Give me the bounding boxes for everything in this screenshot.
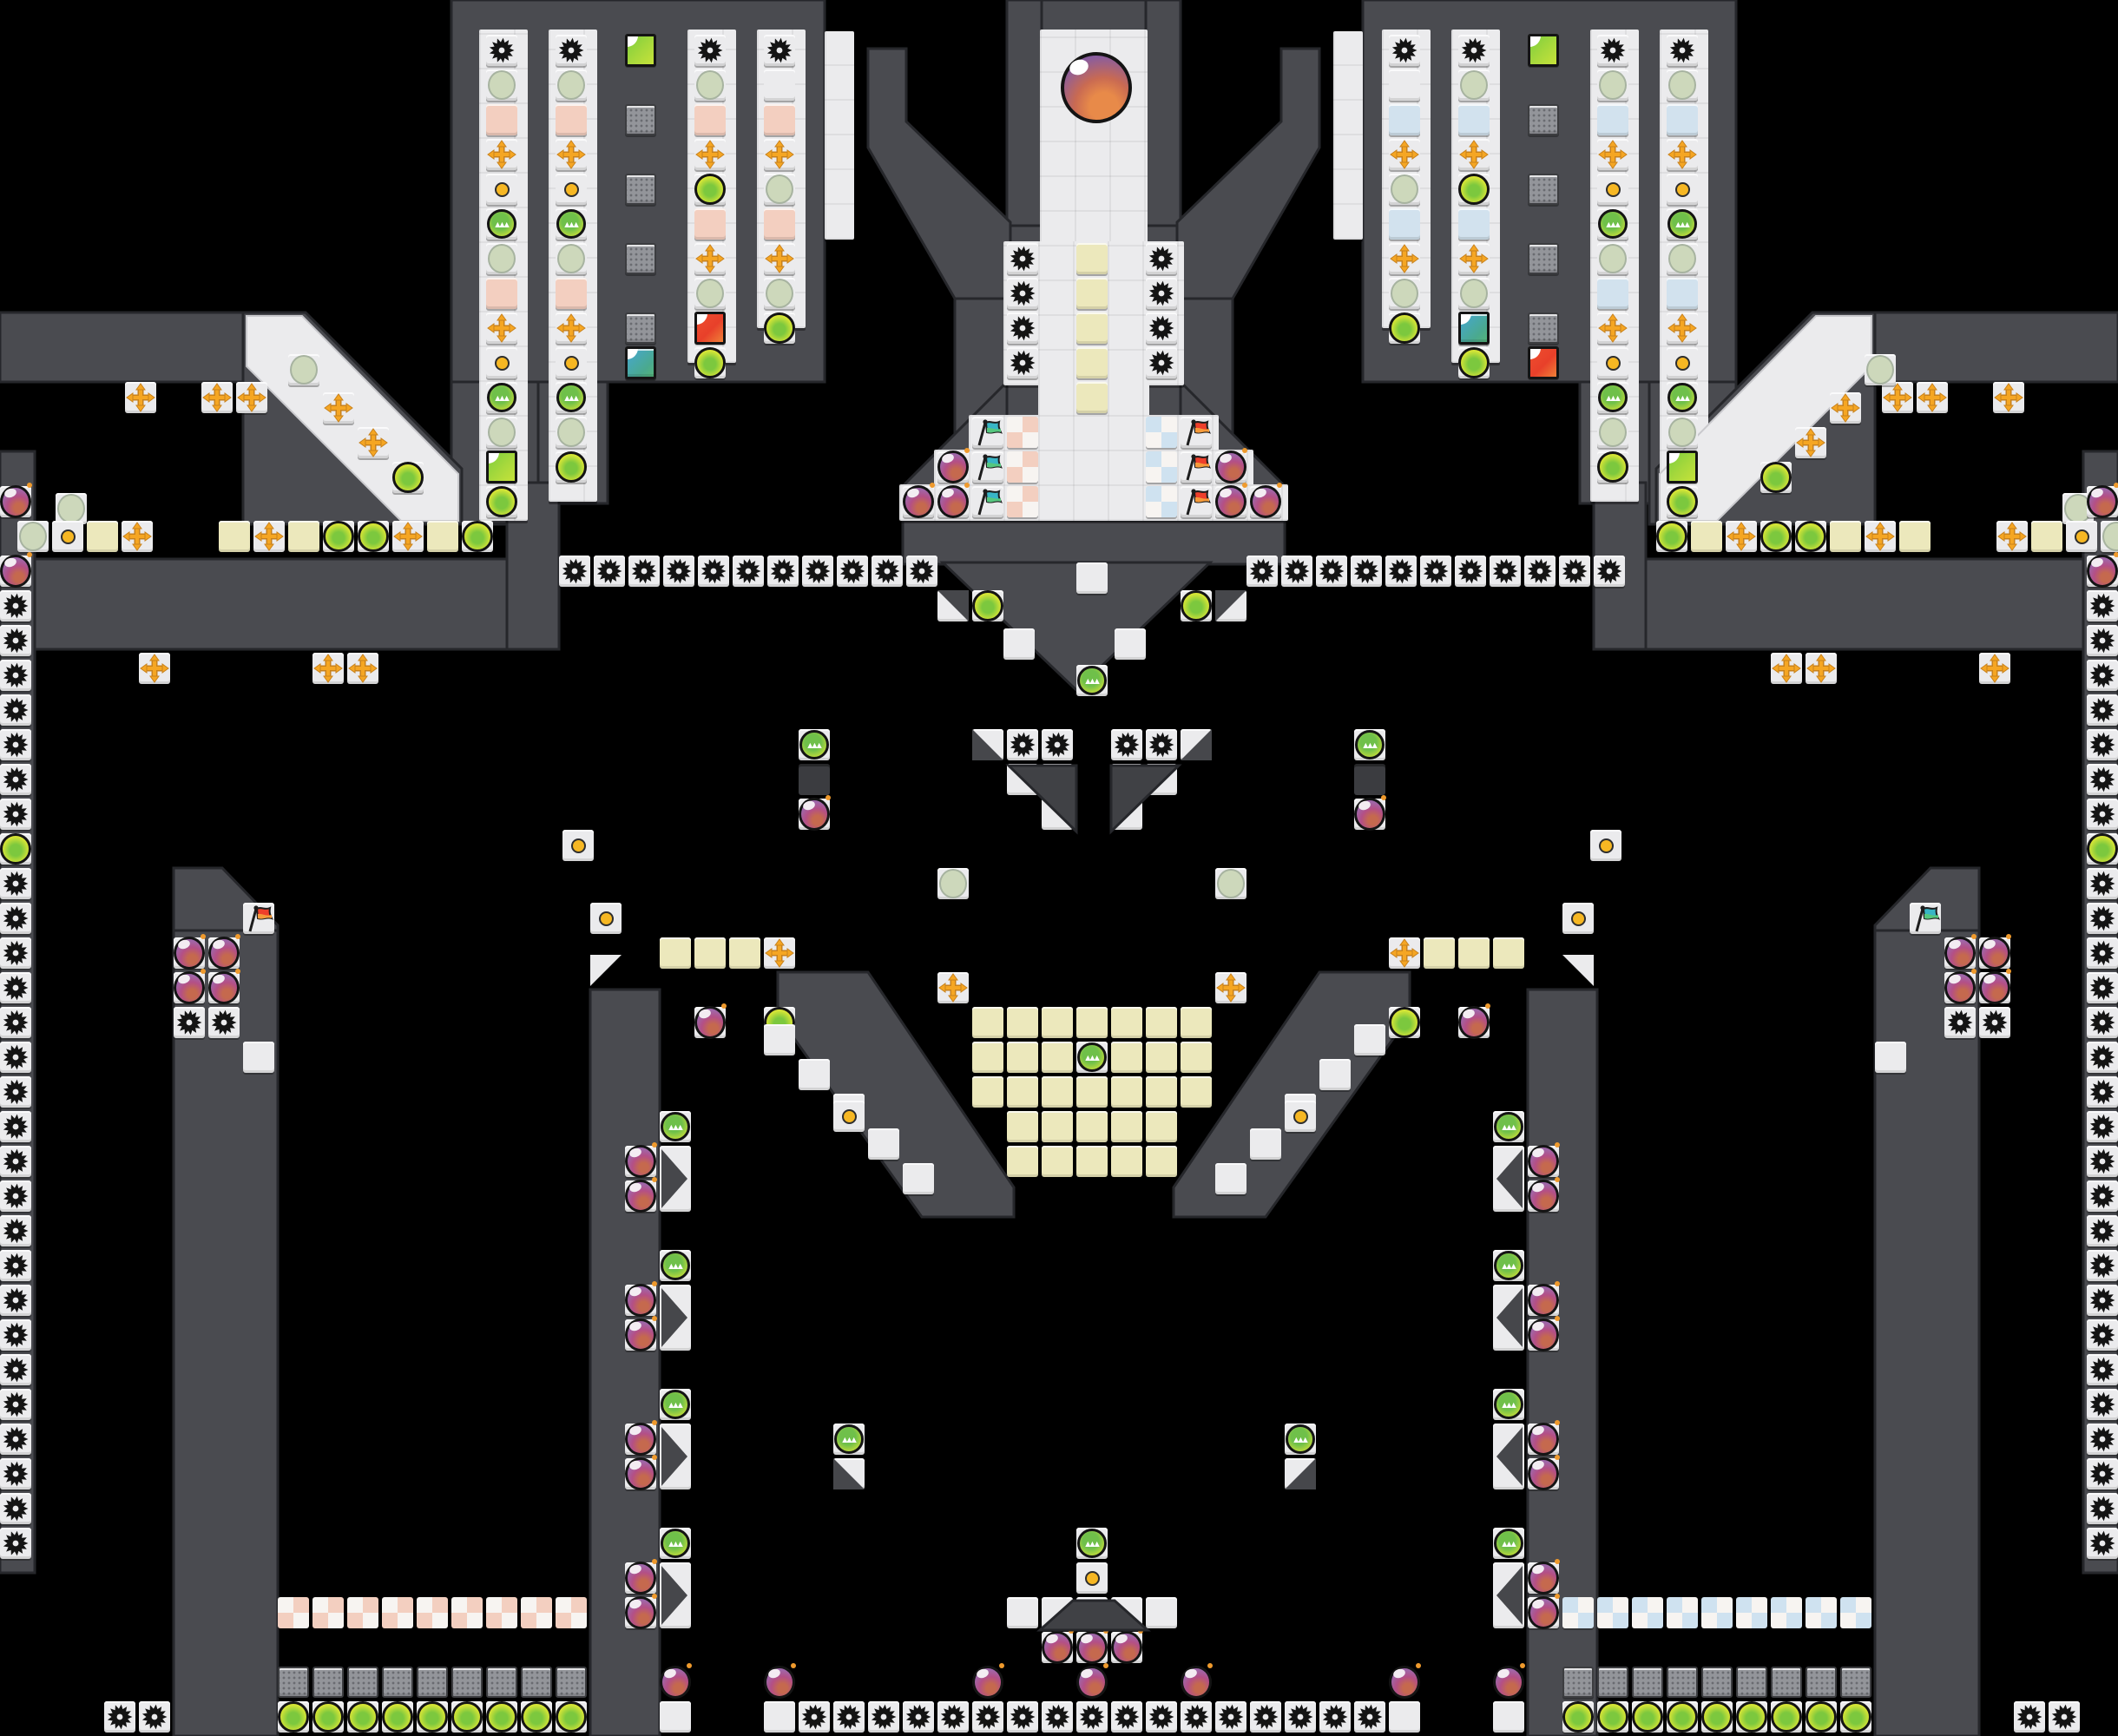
pale-coin[interactable] [488, 244, 516, 273]
move-cross-icon [1389, 243, 1420, 274]
lime-coin-tile [1771, 1701, 1802, 1733]
saw-tile [2087, 1528, 2118, 1559]
lime-coin[interactable] [2087, 833, 2118, 865]
level-map: ▲▲▲ ▲▲▲ ▲▲▲ ▲▲▲ [0, 0, 2118, 1736]
cream-path-tile [1146, 1076, 1177, 1108]
lime-coin[interactable] [417, 1701, 448, 1733]
creature-coin-tile: ▲▲▲ [1493, 1111, 1524, 1142]
pale-coin[interactable] [1391, 174, 1418, 204]
checker-blue-tile [1632, 1597, 1663, 1628]
saw-blade-icon [1007, 312, 1038, 344]
creature-coin[interactable]: ▲▲▲ [1494, 1112, 1523, 1141]
blue-track-tile [1667, 104, 1698, 135]
creature-coin[interactable]: ▲▲▲ [487, 209, 516, 239]
bomb[interactable] [1076, 1666, 1108, 1699]
bomb[interactable] [1528, 1284, 1559, 1317]
pale-coin-tile [486, 417, 517, 448]
bomb[interactable] [1111, 1631, 1142, 1664]
creature-coin[interactable]: ▲▲▲ [1286, 1424, 1315, 1454]
mini-coin[interactable] [1675, 182, 1690, 197]
mini-coin[interactable] [495, 182, 510, 197]
creature-coin[interactable]: ▲▲▲ [661, 1529, 690, 1558]
cross-tile [312, 653, 344, 684]
bomb[interactable] [625, 1457, 656, 1490]
white-tile [1042, 1597, 1073, 1628]
bomb-tile [625, 1562, 656, 1594]
pale-coin[interactable] [488, 70, 516, 100]
bomb[interactable] [0, 485, 31, 518]
saw-tile [1316, 556, 1347, 587]
bomb[interactable] [625, 1423, 656, 1456]
saw-blade-icon [2087, 1007, 2118, 1038]
pale-coin[interactable] [1668, 70, 1696, 100]
bomb-tile [625, 1319, 656, 1351]
card-teal[interactable] [625, 346, 656, 379]
saw-tile [903, 1701, 934, 1733]
pale-coin[interactable] [57, 494, 85, 523]
mini-coin[interactable] [1599, 838, 1614, 853]
bomb[interactable] [2087, 555, 2118, 588]
creature-coin[interactable]: ▲▲▲ [1077, 1042, 1107, 1072]
creature-coin-tile: ▲▲▲ [1493, 1528, 1524, 1559]
pale-coin[interactable] [696, 279, 724, 308]
bomb[interactable] [1944, 937, 1976, 970]
creature-coin[interactable]: ▲▲▲ [1494, 1251, 1523, 1280]
creature-coin[interactable]: ▲▲▲ [1667, 383, 1697, 412]
checker-blue-tile [1146, 486, 1177, 517]
white-tile [1076, 562, 1108, 594]
bomb[interactable] [1528, 1596, 1559, 1629]
mini-coin[interactable] [842, 1109, 857, 1124]
bomb[interactable] [1215, 485, 1246, 518]
white-tile [764, 69, 795, 101]
pale-coin[interactable] [1599, 70, 1627, 100]
pale-coin[interactable] [1217, 869, 1245, 898]
mini-coin-tile [1285, 1101, 1316, 1132]
cream-path-tile [1076, 347, 1108, 378]
pale-coin[interactable] [939, 869, 967, 898]
lime-coin-tile [486, 486, 517, 517]
bomb[interactable] [625, 1596, 656, 1629]
saw-tile [1146, 278, 1177, 309]
cream-path-tile [2031, 521, 2062, 552]
mini-coin[interactable] [2075, 529, 2089, 544]
saw-blade-icon [2087, 937, 2118, 969]
flag-red-icon [1181, 417, 1212, 448]
creature-coin[interactable]: ▲▲▲ [661, 1112, 690, 1141]
bomb[interactable] [625, 1318, 656, 1351]
pale-coin[interactable] [766, 174, 793, 204]
pale-coin[interactable] [557, 244, 585, 273]
card-green[interactable] [1528, 34, 1559, 67]
cream-path-tile [1042, 1042, 1073, 1073]
card-tile [1528, 347, 1559, 378]
pale-coin[interactable] [290, 355, 318, 385]
saw-tile [1667, 35, 1698, 66]
card-tile [1458, 312, 1490, 344]
lime-coin[interactable] [1389, 1007, 1420, 1038]
pale-coin[interactable] [766, 279, 793, 308]
creature-coin[interactable]: ▲▲▲ [556, 209, 586, 239]
creature-coin[interactable]: ▲▲▲ [1494, 1390, 1523, 1419]
bomb[interactable] [174, 971, 205, 1004]
creature-coin-tile: ▲▲▲ [486, 382, 517, 413]
lime-coin[interactable] [358, 521, 389, 552]
card-red[interactable] [1528, 346, 1559, 379]
white-tile [1875, 1042, 1906, 1073]
bomb[interactable] [1528, 1457, 1559, 1490]
lime-coin[interactable] [486, 1701, 517, 1733]
saw-tile [1319, 1701, 1351, 1733]
cross-tile [1458, 243, 1490, 274]
saw-tile [2087, 1042, 2118, 1073]
cream-path-tile [1899, 521, 1931, 552]
cream-path-tile [1076, 243, 1108, 274]
lime-coin[interactable] [1771, 1701, 1802, 1733]
bomb[interactable] [1528, 1180, 1559, 1213]
bomb[interactable] [903, 485, 934, 518]
lime-coin[interactable] [382, 1701, 413, 1733]
creature-coin[interactable]: ▲▲▲ [799, 730, 829, 759]
lime-coin[interactable] [0, 833, 31, 865]
creature-coin[interactable]: ▲▲▲ [1598, 383, 1628, 412]
bomb[interactable] [1250, 485, 1281, 518]
mini-coin[interactable] [1571, 911, 1586, 926]
lime-coin-tile [1701, 1701, 1733, 1733]
bomb-tile [1528, 1285, 1559, 1316]
mini-coin-tile [1667, 347, 1698, 378]
lime-coin[interactable] [312, 1701, 344, 1733]
mini-coin[interactable] [599, 911, 614, 926]
bomb[interactable] [1389, 1666, 1420, 1699]
lime-coin[interactable] [694, 174, 726, 205]
cross-tile [1389, 243, 1420, 274]
lime-coin[interactable] [392, 462, 424, 493]
lime-coin[interactable] [694, 347, 726, 378]
cross-tile [125, 382, 156, 413]
mini-coin[interactable] [571, 838, 586, 853]
saw-blade-icon [0, 1042, 31, 1073]
lime-coin[interactable] [1458, 347, 1490, 378]
brick-block [1667, 1667, 1698, 1698]
pale-coin[interactable] [19, 522, 47, 551]
bomb[interactable] [937, 485, 969, 518]
saw-blade-icon [0, 625, 31, 656]
move-cross-icon [1667, 312, 1698, 344]
bomb[interactable] [0, 555, 31, 588]
bomb[interactable] [625, 1284, 656, 1317]
cream-path-tile [1146, 1007, 1177, 1038]
saw-blade-icon [2087, 1076, 2118, 1108]
lime-coin[interactable] [486, 486, 517, 517]
spike-tile [660, 1424, 691, 1489]
brick-block [1528, 104, 1559, 135]
card-green[interactable] [625, 34, 656, 67]
cream-path-tile [1111, 1146, 1142, 1177]
cross-tile [122, 521, 153, 552]
creature-coin-tile: ▲▲▲ [486, 208, 517, 240]
bomb-tile [1528, 1458, 1559, 1489]
lime-coin[interactable] [1181, 590, 1212, 621]
saw-tile [1042, 729, 1073, 760]
saw-blade-icon [0, 590, 31, 621]
card-green[interactable] [1667, 450, 1698, 483]
bomb[interactable] [1042, 1631, 1073, 1664]
bomb[interactable] [1944, 971, 1976, 1004]
saw-tile [2087, 1007, 2118, 1038]
saw-blade-icon [1524, 556, 1556, 587]
creature-coin[interactable]: ▲▲▲ [1598, 209, 1628, 239]
mini-coin[interactable] [1606, 182, 1621, 197]
saw-tile [1146, 347, 1177, 378]
saw-tile [694, 35, 726, 66]
pale-coin[interactable] [557, 418, 585, 447]
bomb[interactable] [1979, 937, 2010, 970]
saw-blade-icon [903, 1701, 934, 1733]
lime-coin[interactable] [451, 1701, 483, 1733]
white-tile [1042, 799, 1073, 830]
bomb[interactable] [1528, 1423, 1559, 1456]
bomb[interactable] [1076, 1631, 1108, 1664]
bomb[interactable] [208, 971, 240, 1004]
cream-path-tile [1007, 1076, 1038, 1108]
pale-coin[interactable] [488, 418, 516, 447]
pale-coin[interactable] [2102, 522, 2118, 551]
mini-coin[interactable] [1293, 1109, 1308, 1124]
bomb[interactable] [2087, 485, 2118, 518]
lime-coin[interactable] [1656, 521, 1687, 552]
bomb[interactable] [660, 1666, 691, 1699]
creature-coin[interactable]: ▲▲▲ [1667, 209, 1697, 239]
lime-coin[interactable] [1840, 1701, 1871, 1733]
bomb[interactable] [1979, 971, 2010, 1004]
move-cross-icon [1806, 653, 1837, 684]
mini-coin-tile [590, 903, 622, 934]
bomb[interactable] [799, 798, 830, 831]
saw-tile [1285, 1701, 1316, 1733]
lime-coin[interactable] [1760, 462, 1792, 493]
bomb[interactable] [1493, 1666, 1524, 1699]
lime-coin[interactable] [1806, 1701, 1837, 1733]
bomb[interactable] [1215, 450, 1246, 483]
lime-coin[interactable] [972, 590, 1003, 621]
pale-coin[interactable] [696, 70, 724, 100]
orb[interactable] [1061, 52, 1132, 123]
saw-blade-icon [1007, 347, 1038, 378]
mini-coin[interactable] [495, 356, 510, 371]
pale-coin[interactable] [1668, 244, 1696, 273]
lime-coin[interactable] [1667, 1701, 1698, 1733]
creature-coin[interactable]: ▲▲▲ [661, 1390, 690, 1419]
mini-coin[interactable] [564, 356, 579, 371]
lime-coin[interactable] [462, 521, 493, 552]
pale-coin[interactable] [1599, 418, 1627, 447]
bomb-tile [208, 972, 240, 1003]
pale-coin[interactable] [1391, 279, 1418, 308]
cream-path-tile [1042, 1076, 1073, 1108]
lime-coin[interactable] [1389, 312, 1420, 344]
lime-coin[interactable] [521, 1701, 552, 1733]
lime-coin-tile [1458, 174, 1490, 205]
lime-coin[interactable] [347, 1701, 378, 1733]
saw-blade-icon [2087, 868, 2118, 899]
saw-blade-icon [2087, 903, 2118, 934]
lime-coin[interactable] [1701, 1701, 1733, 1733]
saw-blade-icon [1351, 556, 1382, 587]
saw-tile [1246, 556, 1278, 587]
creature-coin[interactable]: ▲▲▲ [1077, 666, 1107, 695]
bomb[interactable] [694, 1006, 726, 1039]
card-red[interactable] [694, 312, 726, 345]
mini-coin[interactable] [1085, 1571, 1100, 1586]
lime-coin[interactable] [764, 312, 795, 344]
bomb[interactable] [1528, 1562, 1559, 1595]
lime-coin[interactable] [1597, 451, 1628, 483]
lime-coin[interactable] [1667, 486, 1698, 517]
lime-coin[interactable] [1736, 1701, 1767, 1733]
mini-coin[interactable] [564, 182, 579, 197]
saw-tile [1420, 556, 1451, 587]
lime-coin[interactable] [1632, 1701, 1663, 1733]
saw-tile [1215, 1701, 1246, 1733]
checker-blue-tile [1701, 1597, 1733, 1628]
creature-coin[interactable]: ▲▲▲ [487, 383, 516, 412]
bomb-float-slot [1181, 1667, 1212, 1698]
saw-blade-icon [2087, 1042, 2118, 1073]
lime-coin[interactable] [1458, 174, 1490, 205]
cross-tile [323, 392, 354, 424]
bomb-tile [625, 1424, 656, 1455]
bomb-tile [1528, 1562, 1559, 1594]
lime-coin[interactable] [1760, 521, 1792, 552]
move-cross-icon [1458, 243, 1490, 274]
pale-coin[interactable] [1460, 279, 1488, 308]
bomb-tile [625, 1180, 656, 1212]
pale-coin-tile [486, 69, 517, 101]
pale-coin[interactable] [557, 70, 585, 100]
white-tile [1389, 69, 1420, 101]
blue-track-tile [1458, 208, 1490, 240]
creature-coin[interactable]: ▲▲▲ [556, 383, 586, 412]
bomb[interactable] [937, 450, 969, 483]
brick-block [625, 174, 656, 205]
pale-coin[interactable] [1866, 355, 1894, 385]
saw-tile [2087, 694, 2118, 726]
dark-socket-tile [1354, 764, 1385, 795]
lime-coin[interactable] [278, 1701, 309, 1733]
creature-coin[interactable]: ▲▲▲ [1077, 1529, 1107, 1558]
bomb-tile [903, 486, 934, 517]
bomb[interactable] [625, 1562, 656, 1595]
mini-coin[interactable] [61, 529, 76, 544]
bomb[interactable] [625, 1180, 656, 1213]
creature-coin[interactable]: ▲▲▲ [1494, 1529, 1523, 1558]
saw-tile [1281, 556, 1312, 587]
bomb[interactable] [625, 1145, 656, 1178]
cream-path-tile [1146, 1042, 1177, 1073]
pale-coin[interactable] [1599, 244, 1627, 273]
bomb[interactable] [1528, 1145, 1559, 1178]
lime-coin[interactable] [1795, 521, 1826, 552]
mini-coin-tile [2066, 521, 2097, 552]
brick-block [312, 1667, 344, 1698]
lime-coin-tile [764, 312, 795, 344]
cross-tile [556, 139, 587, 170]
saw-tile [0, 1389, 31, 1420]
move-cross-icon [392, 521, 424, 552]
creature-coin[interactable]: ▲▲▲ [661, 1251, 690, 1280]
bomb-tile [2087, 556, 2118, 587]
bomb[interactable] [208, 937, 240, 970]
move-cross-icon [694, 243, 726, 274]
bomb-float-slot [1076, 1667, 1108, 1698]
bomb[interactable] [972, 1666, 1003, 1699]
saw-tile [0, 1528, 31, 1559]
lime-coin[interactable] [1597, 1701, 1628, 1733]
bomb[interactable] [1528, 1318, 1559, 1351]
bomb-tile [1528, 1146, 1559, 1177]
lime-coin-tile [462, 521, 493, 552]
mini-coin[interactable] [1606, 356, 1621, 371]
pale-coin-tile [1667, 417, 1698, 448]
saw-blade-icon [0, 1007, 31, 1038]
move-cross-icon [1215, 972, 1246, 1003]
slope-tile [1181, 729, 1212, 760]
flag-teal-tile [972, 486, 1003, 517]
white-tile [903, 1163, 934, 1194]
saw-blade-icon [0, 1424, 31, 1455]
lime-coin[interactable] [556, 451, 587, 483]
move-cross-icon [556, 139, 587, 170]
creature-coin[interactable]: ▲▲▲ [1355, 730, 1385, 759]
saw-tile [972, 1701, 1003, 1733]
saw-tile [1146, 729, 1177, 760]
cross-tile [392, 521, 424, 552]
saw-blade-icon [2087, 1493, 2118, 1524]
saw-tile [906, 556, 937, 587]
mini-coin[interactable] [1675, 356, 1690, 371]
bomb[interactable] [1354, 798, 1385, 831]
saw-tile [559, 556, 590, 587]
checker-pink-tile [312, 1597, 344, 1628]
saw-tile [2087, 1354, 2118, 1385]
lime-coin[interactable] [1562, 1701, 1594, 1733]
pale-coin[interactable] [1460, 70, 1488, 100]
bomb[interactable] [1181, 1666, 1212, 1699]
white-tile [764, 1024, 795, 1055]
cream-path-tile [694, 937, 726, 969]
blue-track-tile [1389, 208, 1420, 240]
saw-tile [2087, 1389, 2118, 1420]
pale-coin-tile [1597, 417, 1628, 448]
card-teal[interactable] [1458, 312, 1490, 345]
lime-coin-tile [1667, 1701, 1698, 1733]
saw-blade-icon [2087, 1250, 2118, 1281]
pale-coin-tile [1389, 278, 1420, 309]
bomb[interactable] [174, 937, 205, 970]
pale-coin[interactable] [1668, 418, 1696, 447]
creature-coin[interactable]: ▲▲▲ [834, 1424, 864, 1454]
saw-blade-icon [1316, 556, 1347, 587]
bomb[interactable] [764, 1666, 795, 1699]
cross-tile [764, 243, 795, 274]
creature-coin-tile: ▲▲▲ [556, 208, 587, 240]
lime-coin[interactable] [556, 1701, 587, 1733]
bomb-tile [2087, 486, 2118, 517]
bomb[interactable] [1458, 1006, 1490, 1039]
card-green[interactable] [486, 450, 517, 483]
lime-coin[interactable] [323, 521, 354, 552]
